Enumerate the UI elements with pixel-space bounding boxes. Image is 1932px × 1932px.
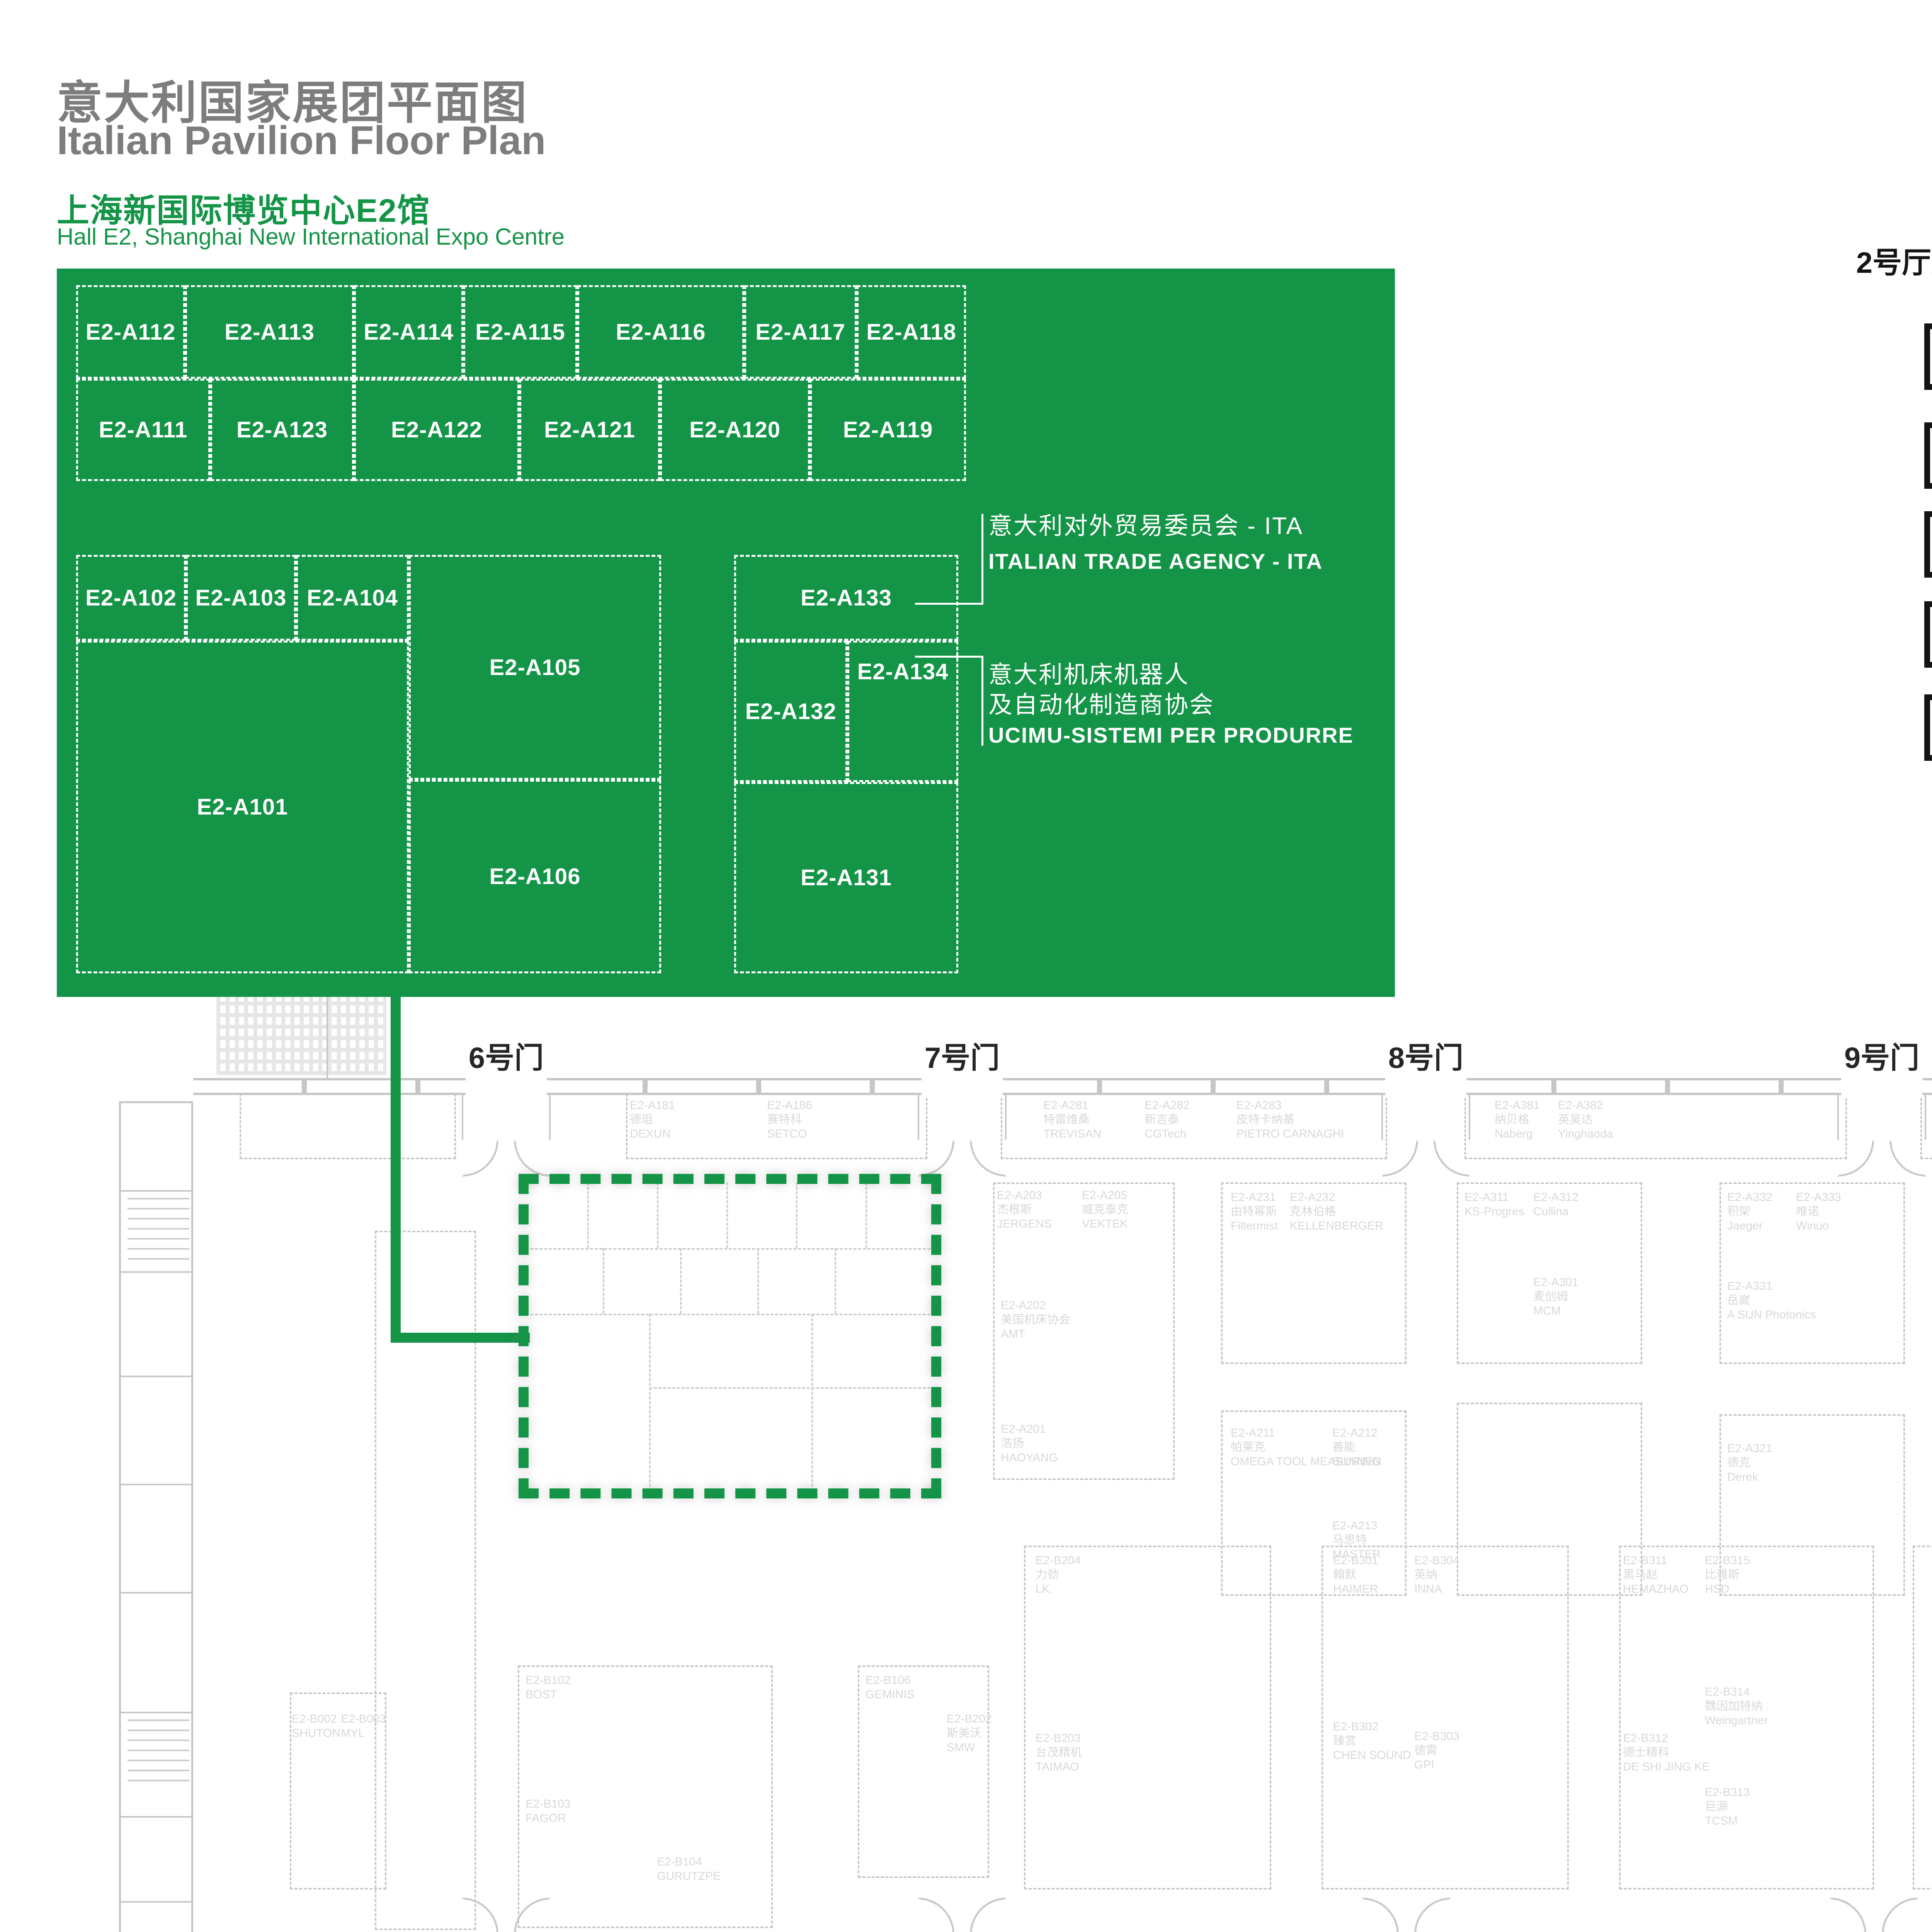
- italian-pavilion-floorplan-page: 意大利国家展团平面图 Italian Pavilion Floor Plan 上…: [0, 0, 1932, 1932]
- overview-hall-w: W3: [1924, 511, 1932, 578]
- overview-hall-w: W5: [1924, 323, 1932, 390]
- overview-hall-w: W2: [1924, 601, 1932, 668]
- expo-centre-overview-map: 北 2号厅入口 3号厅入口 1号厅入口 意大利国家展团 Italian Pavi…: [0, 0, 1932, 1932]
- overview-hall-w: W1: [1924, 694, 1932, 761]
- entrance-1-label: 1号厅入口: [1917, 857, 1932, 900]
- entrance-2-label: 2号厅入口: [1839, 239, 1932, 281]
- overview-hall-w: W4: [1924, 422, 1932, 489]
